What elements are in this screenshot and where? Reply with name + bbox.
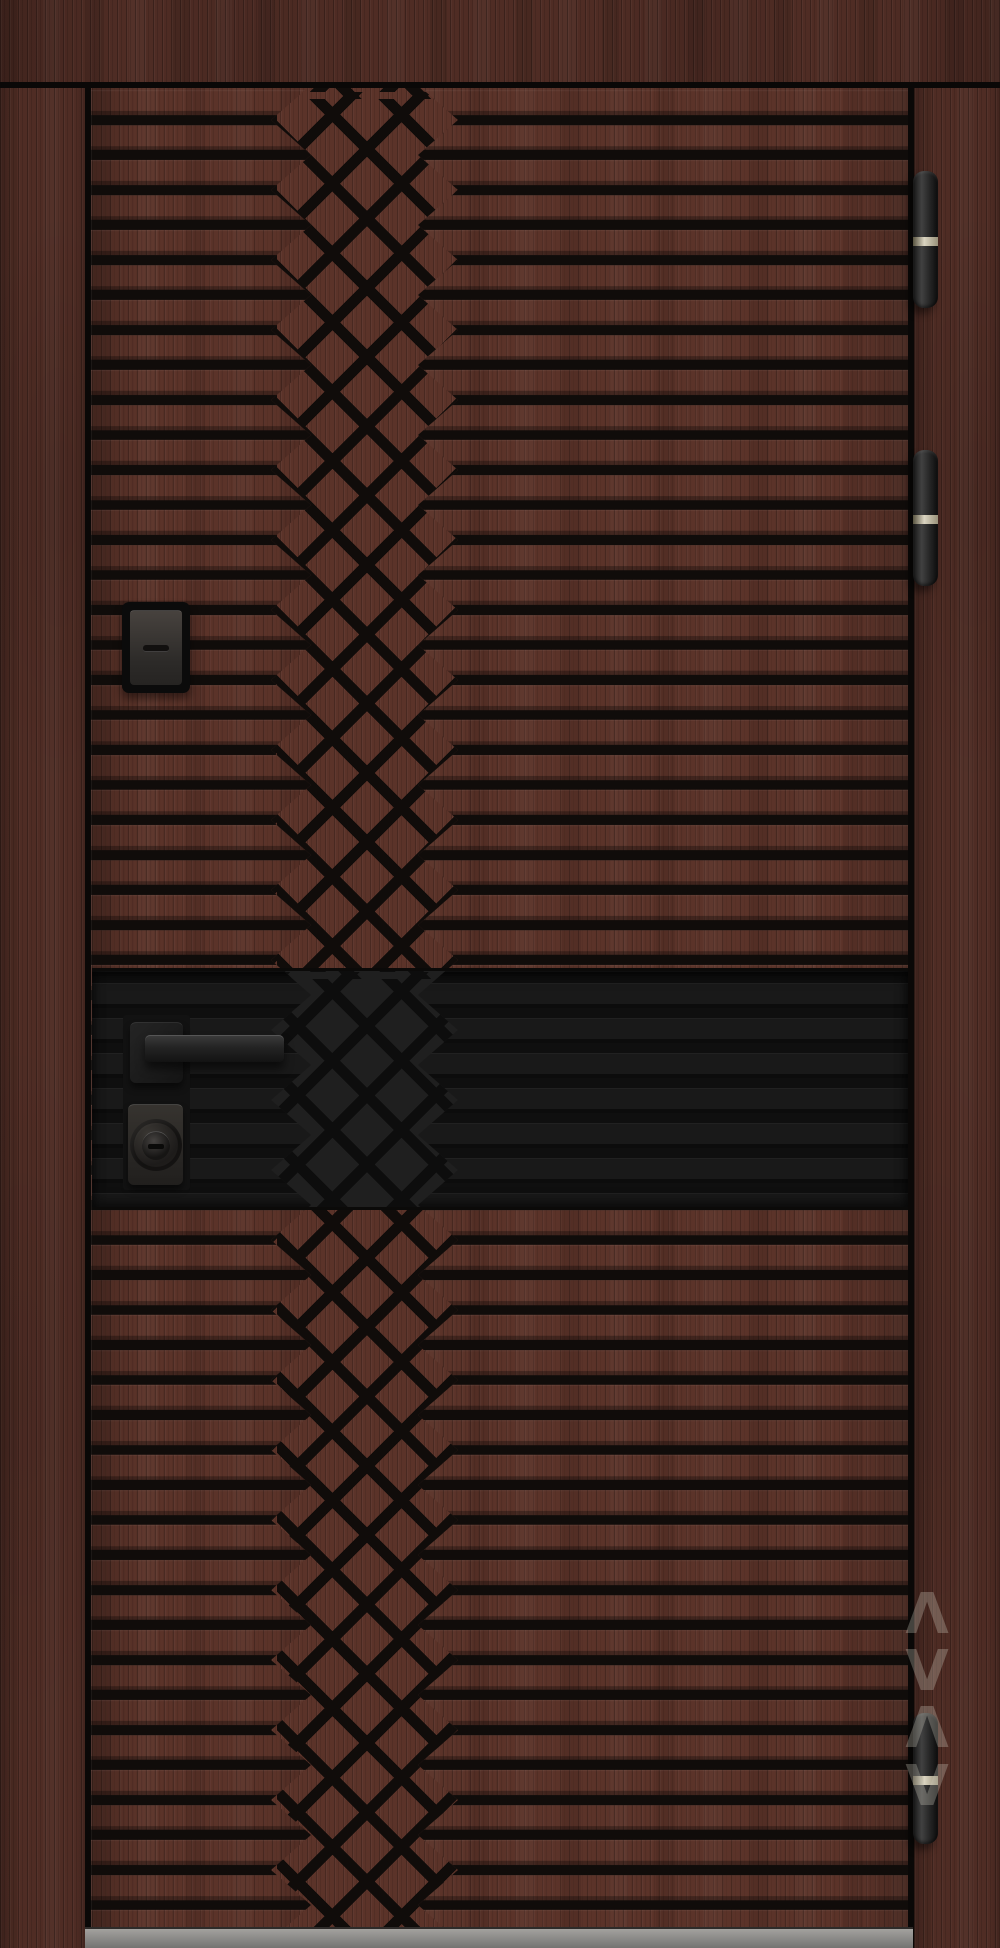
lock-escutcheon (128, 1104, 183, 1185)
hinge-top-ring (913, 237, 938, 246)
hinge-middle (913, 450, 938, 586)
accent-band-bottom-edge (92, 1207, 908, 1210)
door-viewer-face (130, 610, 182, 685)
door-frame-lintel (0, 0, 1000, 82)
hinge-top (913, 171, 938, 308)
door-frame-right-jamb (914, 88, 1000, 1948)
door-viewer-slot (143, 645, 169, 652)
door-handle-lever (145, 1035, 284, 1062)
accent-band (92, 968, 908, 1210)
door-photo: Λ V Λ V (0, 0, 1000, 1948)
hinge-middle-ring (913, 515, 938, 524)
hinge-bottom (913, 1713, 938, 1844)
threshold-sill (85, 1927, 913, 1948)
lock-key-core (142, 1131, 170, 1160)
hinge-bottom-ring (913, 1776, 938, 1785)
door-leaf (91, 88, 908, 1927)
accent-band-lattice (271, 968, 458, 1210)
door-viewer-plate (122, 602, 190, 693)
accent-band-top-edge (92, 968, 908, 971)
door-frame-left-jamb (0, 88, 85, 1948)
lock-cylinder-boss (130, 1119, 182, 1171)
keyhole-icon (148, 1144, 164, 1149)
